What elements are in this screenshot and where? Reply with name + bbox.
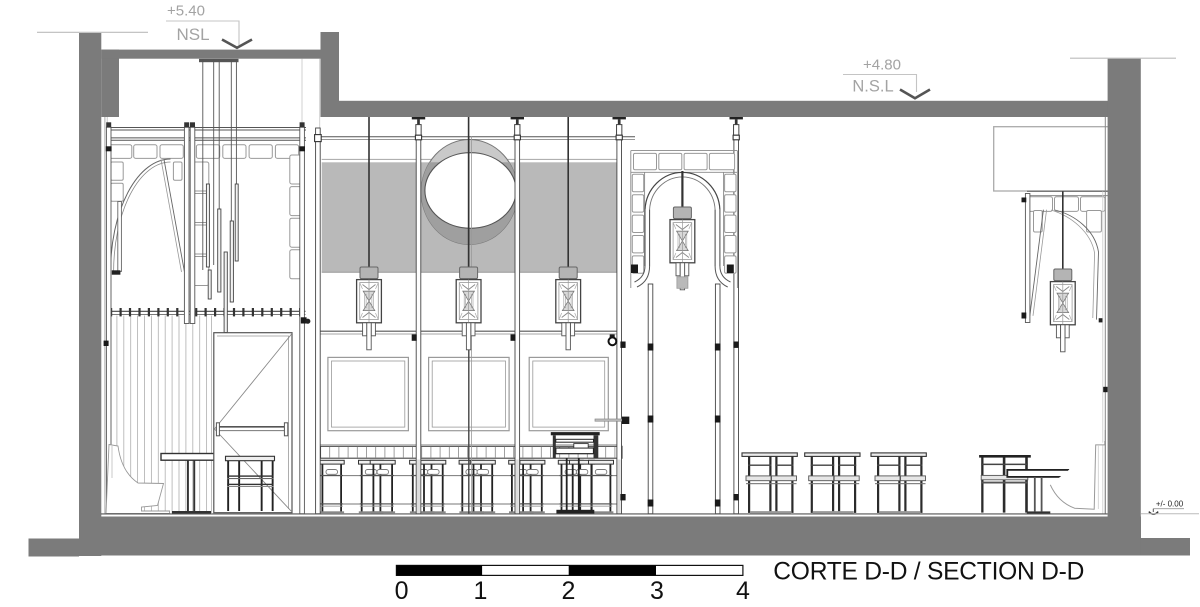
svg-text:2: 2: [562, 577, 576, 605]
svg-text:N.S.L: N.S.L: [852, 78, 893, 96]
svg-text:+5.40: +5.40: [167, 2, 205, 19]
svg-text:NSL: NSL: [176, 25, 209, 44]
svg-text:4: 4: [736, 577, 750, 605]
svg-text:1: 1: [474, 577, 488, 605]
svg-text:+4.80: +4.80: [863, 57, 901, 74]
svg-text:3: 3: [650, 577, 664, 605]
svg-text:+/- 0.00: +/- 0.00: [1156, 500, 1184, 509]
svg-text:CORTE D-D / SECTION D-D: CORTE D-D / SECTION D-D: [773, 559, 1084, 586]
svg-text:0: 0: [395, 577, 409, 605]
